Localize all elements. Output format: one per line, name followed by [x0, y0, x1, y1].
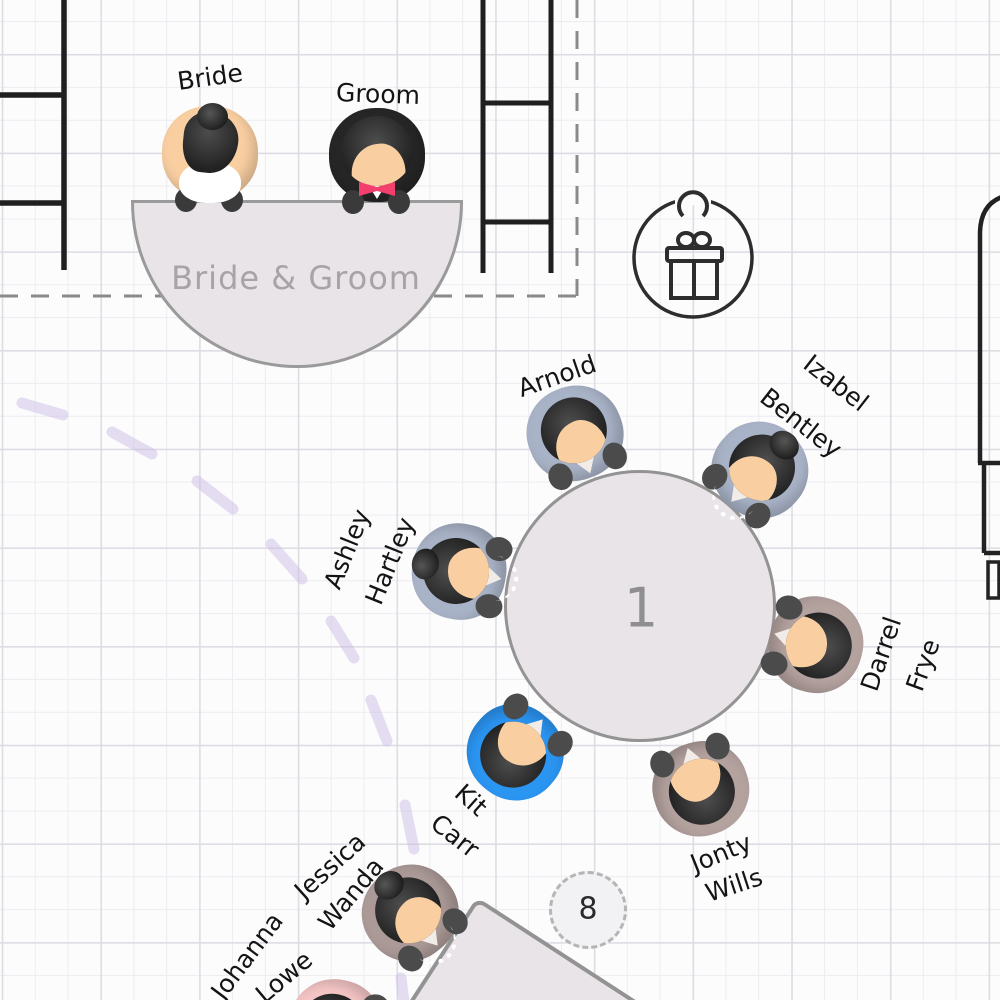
table-label-zone-8: 8 [578, 892, 597, 927]
guest-name-label-kit: Kit [449, 778, 493, 822]
guest-name-label-darrel: Darrel [855, 613, 907, 695]
table-label-table-1: 1 [624, 577, 658, 640]
guest-name-label-groom: Groom [335, 78, 420, 110]
labels-layer: Bride & Groom18BrideGroomArnoldIzabelBen… [0, 0, 1000, 1000]
guest-name-label-frye: Frye [900, 635, 945, 695]
guest-name-label-bride: Bride [175, 58, 244, 96]
table-label-head-table: Bride & Groom [171, 259, 421, 297]
guest-name-label-arnold: Arnold [514, 349, 600, 403]
floorplan-canvas: Bride & Groom18BrideGroomArnoldIzabelBen… [0, 0, 1000, 1000]
guest-name-label-izabel: Izabel [798, 349, 874, 417]
